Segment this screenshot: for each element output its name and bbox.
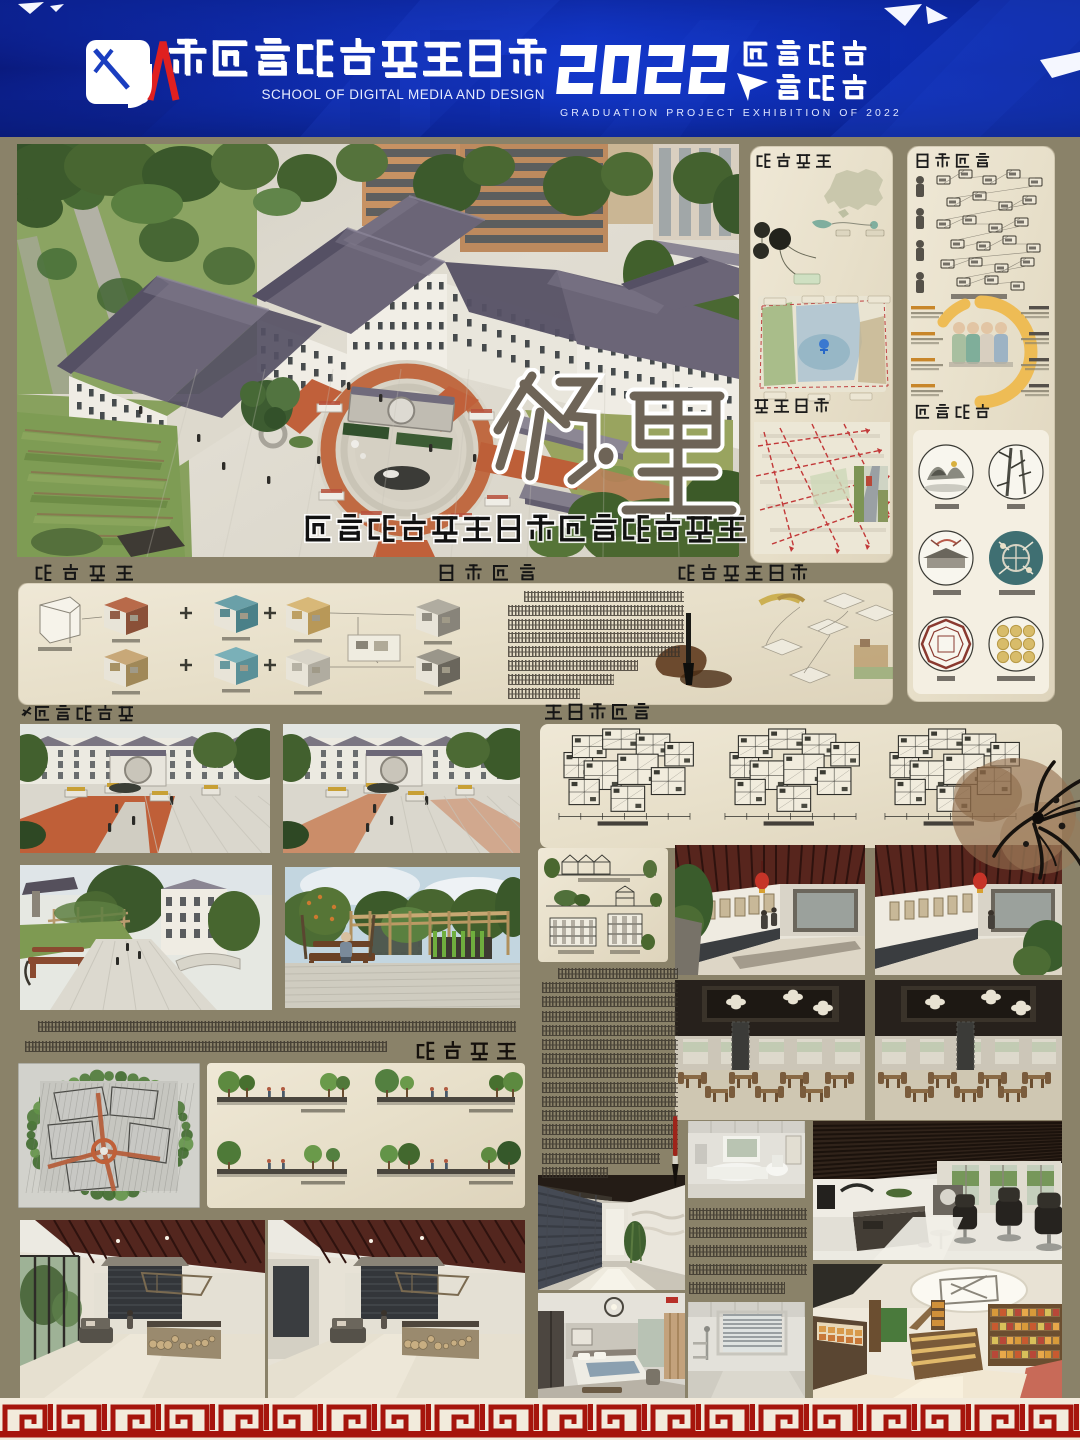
svg-text:SCHOOL OF DIGITAL MEDIA AND DE: SCHOOL OF DIGITAL MEDIA AND DESIGN bbox=[261, 87, 545, 102]
svg-text:GRADUATION PROJECT EXHIBITION: GRADUATION PROJECT EXHIBITION OF 2022 bbox=[560, 107, 902, 119]
